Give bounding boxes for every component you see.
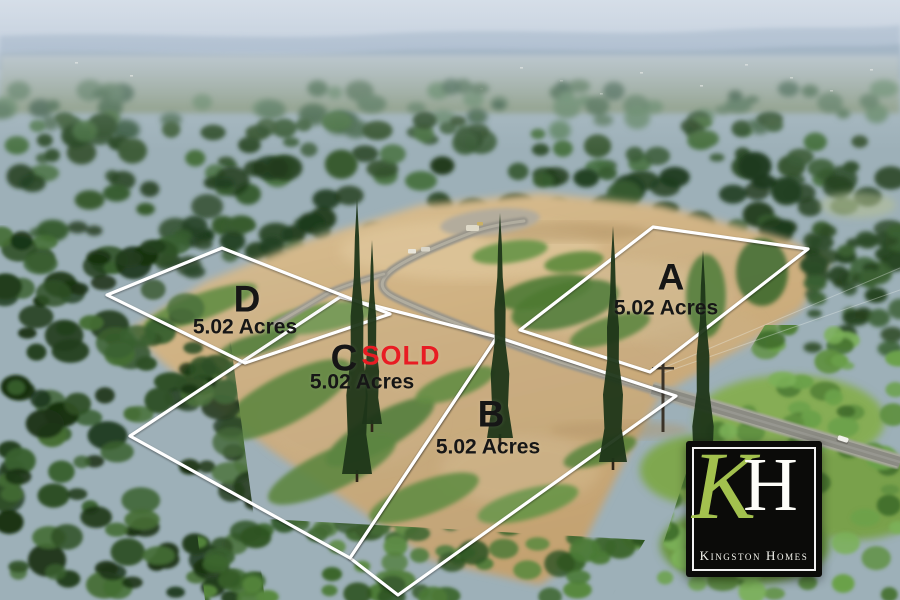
logo-wordmark: Kingston Homes: [686, 548, 822, 564]
lot-c-sold-badge: SOLD: [361, 343, 440, 370]
lot-b-letter: B: [478, 396, 505, 433]
lot-d-letter: D: [234, 281, 261, 318]
lot-b-acreage: 5.02 Acres: [436, 437, 540, 458]
kingston-homes-logo: K H Kingston Homes: [686, 441, 822, 577]
lot-a-acreage: 5.02 Acres: [614, 298, 718, 319]
atmospheric-haze: [0, 0, 900, 150]
logo-monogram-h: H: [743, 447, 798, 523]
lot-a-letter: A: [658, 259, 685, 296]
aerial-lot-map: A 5.02 Acres B 5.02 Acres C SOLD 5.02 Ac…: [0, 0, 900, 600]
lot-c-acreage: 5.02 Acres: [310, 372, 414, 393]
lot-d-acreage: 5.02 Acres: [193, 317, 297, 338]
